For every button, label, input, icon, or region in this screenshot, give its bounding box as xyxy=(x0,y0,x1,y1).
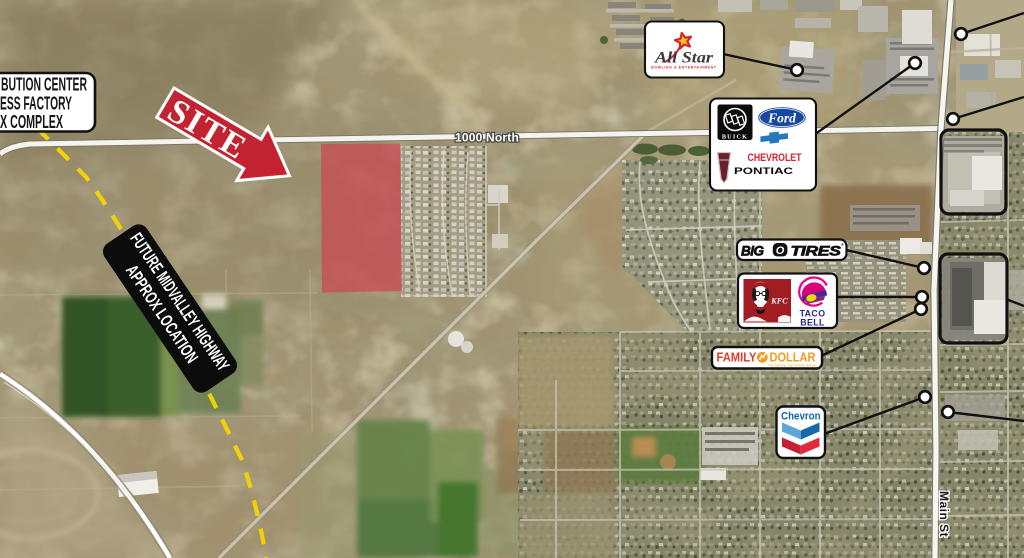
svg-text:BUTION CENTER: BUTION CENTER xyxy=(1,74,87,95)
svg-text:BIG: BIG xyxy=(741,244,765,259)
svg-text:my family. my family dollar.: my family. my family dollar. xyxy=(769,363,818,367)
svg-text:X COMPLEX: X COMPLEX xyxy=(0,111,63,132)
svg-text:PONTIAC: PONTIAC xyxy=(734,166,794,176)
svg-text:Main St: Main St xyxy=(937,491,951,537)
svg-text:CHEVROLET: CHEVROLET xyxy=(748,152,802,164)
svg-text:Chevron: Chevron xyxy=(781,411,821,423)
svg-text:TIRES: TIRES xyxy=(791,244,841,259)
svg-text:O: O xyxy=(776,245,785,257)
svg-text:BUICK: BUICK xyxy=(722,134,748,141)
svg-text:1000 North: 1000 North xyxy=(455,131,519,145)
svg-text:®: ® xyxy=(841,242,844,247)
svg-text:BELL: BELL xyxy=(800,318,825,328)
svg-text:Ford: Ford xyxy=(767,111,796,126)
svg-text:FAMILY: FAMILY xyxy=(717,351,758,365)
svg-text:KFC: KFC xyxy=(770,297,788,306)
svg-text:BOWLING & ENTERTAINMENT: BOWLING & ENTERTAINMENT xyxy=(651,66,717,70)
svg-text:All Star: All Star xyxy=(654,50,714,67)
